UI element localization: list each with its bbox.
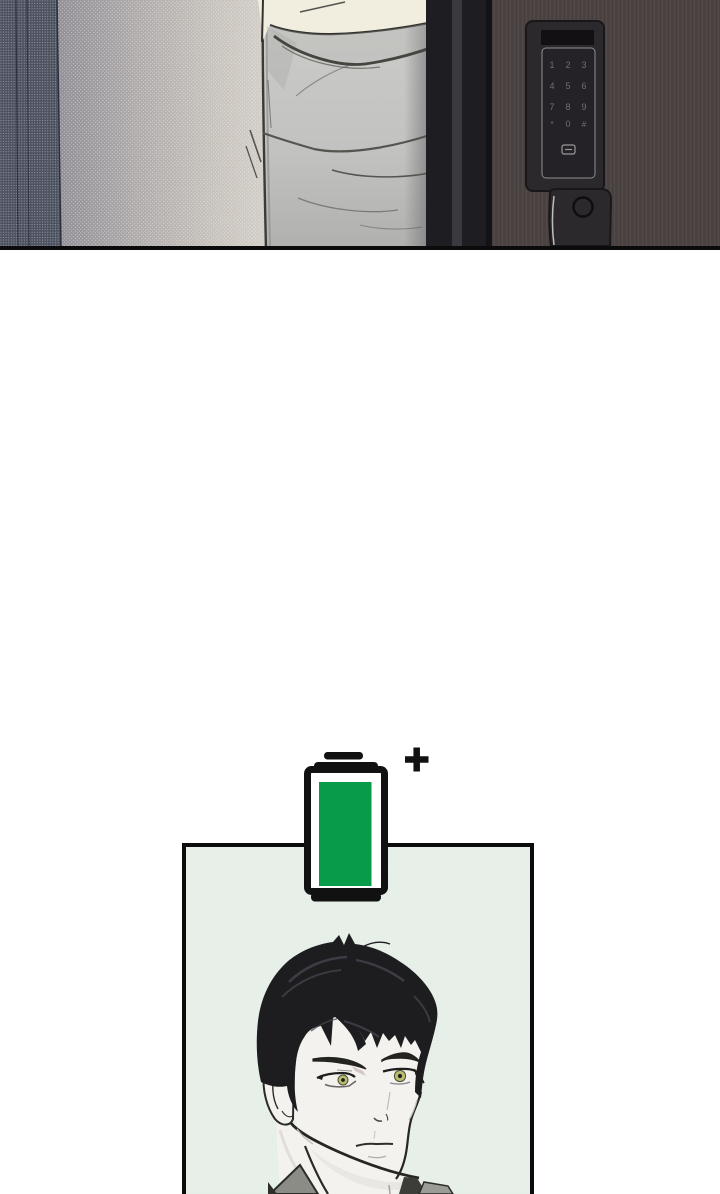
svg-text:1: 1	[549, 60, 554, 70]
svg-text:9: 9	[581, 102, 586, 112]
svg-text:0: 0	[565, 119, 570, 129]
svg-text:#: #	[582, 120, 587, 129]
svg-text:4: 4	[549, 81, 554, 91]
svg-text:8: 8	[565, 102, 570, 112]
svg-text:6: 6	[581, 81, 586, 91]
svg-text:*: *	[550, 120, 553, 129]
svg-text:3: 3	[581, 60, 586, 70]
svg-text:5: 5	[565, 81, 570, 91]
svg-text:7: 7	[549, 102, 554, 112]
svg-text:2: 2	[565, 60, 570, 70]
